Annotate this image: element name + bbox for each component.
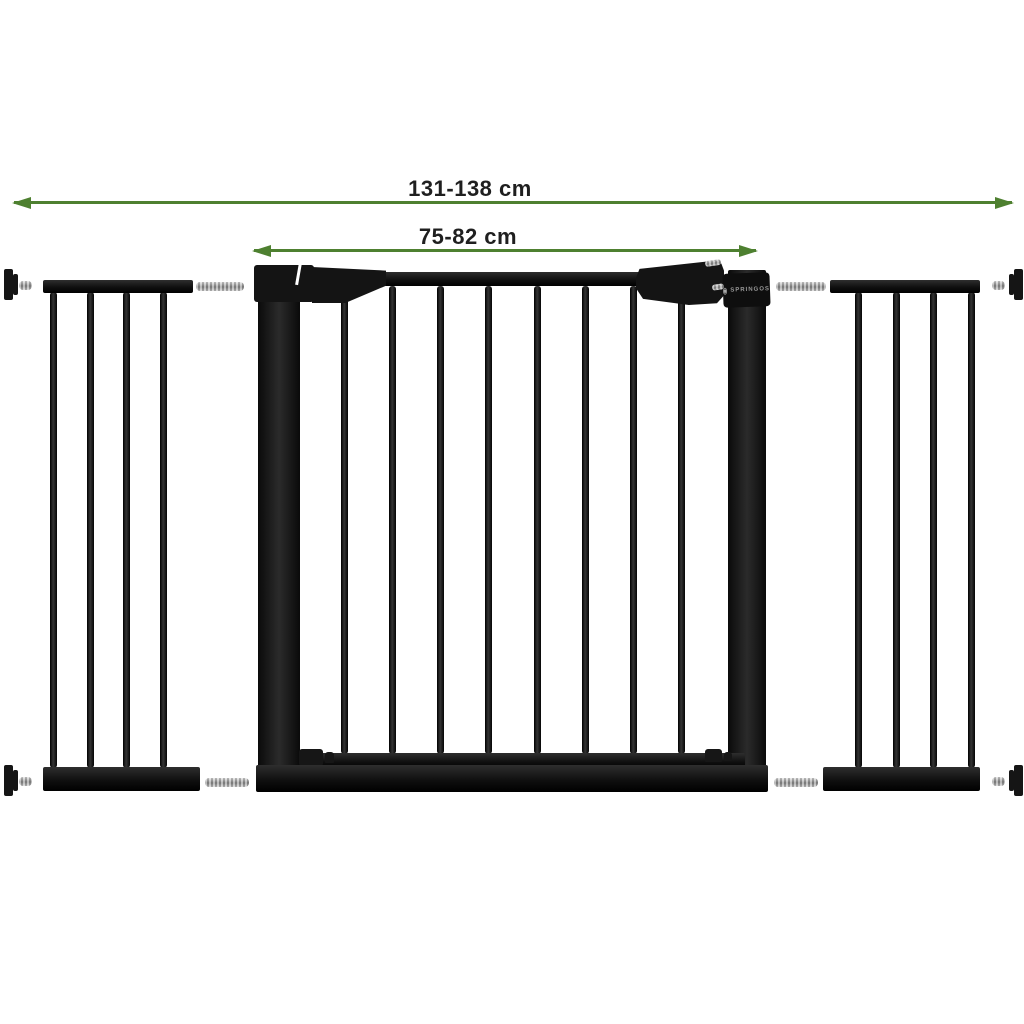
- gate-bar: [485, 286, 492, 754]
- gate-bar: [582, 286, 589, 754]
- spindle-shaft-top-left: [19, 281, 32, 290]
- gate-bar: [855, 292, 862, 768]
- door-bottom-hinge-nub: [325, 752, 334, 763]
- gate-bar: [50, 292, 57, 768]
- gate-bar: [123, 292, 130, 768]
- door-bottom-latch-nub: [724, 752, 732, 761]
- gate-bar: [160, 292, 167, 768]
- gate-width-arrow: [254, 249, 756, 252]
- gate-bottom-rail: [256, 765, 768, 792]
- door-bottom-hinge-clip: [299, 749, 323, 765]
- gate-bar: [893, 292, 900, 768]
- left-extension-top-rail: [43, 280, 193, 293]
- door-bars: [341, 286, 685, 754]
- gate-bar: [630, 286, 637, 754]
- gate-bar: [968, 292, 975, 768]
- connector-pin-bottom-left: [205, 778, 249, 787]
- right-extension-bottom-rail: [823, 767, 980, 791]
- connector-pin-bottom-right: [774, 778, 818, 787]
- brand-name: SPRINGOS: [730, 286, 770, 293]
- hinge-post-cap: [254, 265, 314, 302]
- arrow-right-icon: [739, 245, 758, 257]
- gate-bar: [534, 286, 541, 754]
- arrow-left-icon: [12, 197, 31, 209]
- arrow-left-icon: [252, 245, 271, 257]
- gate-bar: [389, 286, 396, 754]
- gate-bar: [930, 292, 937, 768]
- gate-bar: [437, 286, 444, 754]
- wall-spindle-top-right: [993, 268, 1023, 301]
- gate-bar: [341, 286, 348, 754]
- right-extension-bars: [855, 292, 975, 768]
- gate-width-label: 75-82 cm: [419, 224, 517, 250]
- connector-pin-top-left: [196, 282, 244, 291]
- wall-spindle-bottom-right: [993, 764, 1023, 797]
- gate-bar: [87, 292, 94, 768]
- safety-gate-dimension-diagram: 131-138 cm 75-82 cm SPRINGOS: [0, 0, 1024, 1024]
- left-extension-bottom-rail: [43, 767, 200, 791]
- arrow-right-icon: [995, 197, 1014, 209]
- left-extension-bars: [50, 292, 167, 768]
- gate-bar: [678, 286, 685, 754]
- total-width-label: 131-138 cm: [408, 176, 532, 202]
- total-width-arrow: [14, 201, 1012, 204]
- right-extension-top-rail: [830, 280, 980, 293]
- gate-right-post: [728, 270, 766, 792]
- door-latch-handle: [636, 261, 724, 305]
- latch-post-cap: SPRINGOS: [722, 272, 770, 308]
- door-bottom-latch-clip: [705, 749, 722, 762]
- spindle-shaft-bottom-left: [19, 777, 32, 786]
- gate-left-post: [258, 268, 300, 792]
- connector-pin-top-right: [776, 282, 826, 291]
